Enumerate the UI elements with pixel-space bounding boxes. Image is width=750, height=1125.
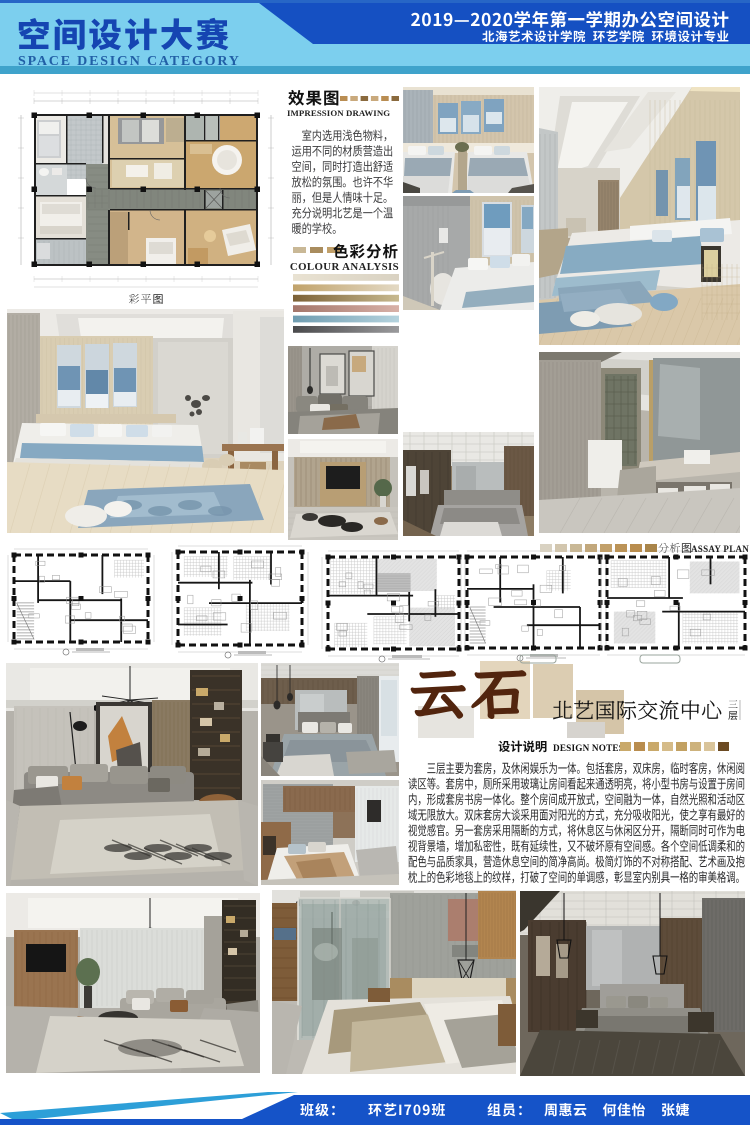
svg-text:ASSAY PLAN: ASSAY PLAN [691, 544, 749, 554]
svg-text:SPACE DESIGN CATEGORY: SPACE DESIGN CATEGORY [18, 54, 241, 69]
svg-text:COLOUR ANALYSIS: COLOUR ANALYSIS [290, 261, 399, 273]
svg-text:DESIGN NOTES: DESIGN NOTES [553, 743, 624, 753]
svg-text:IMPRESSION DRAWING: IMPRESSION DRAWING [287, 108, 390, 118]
